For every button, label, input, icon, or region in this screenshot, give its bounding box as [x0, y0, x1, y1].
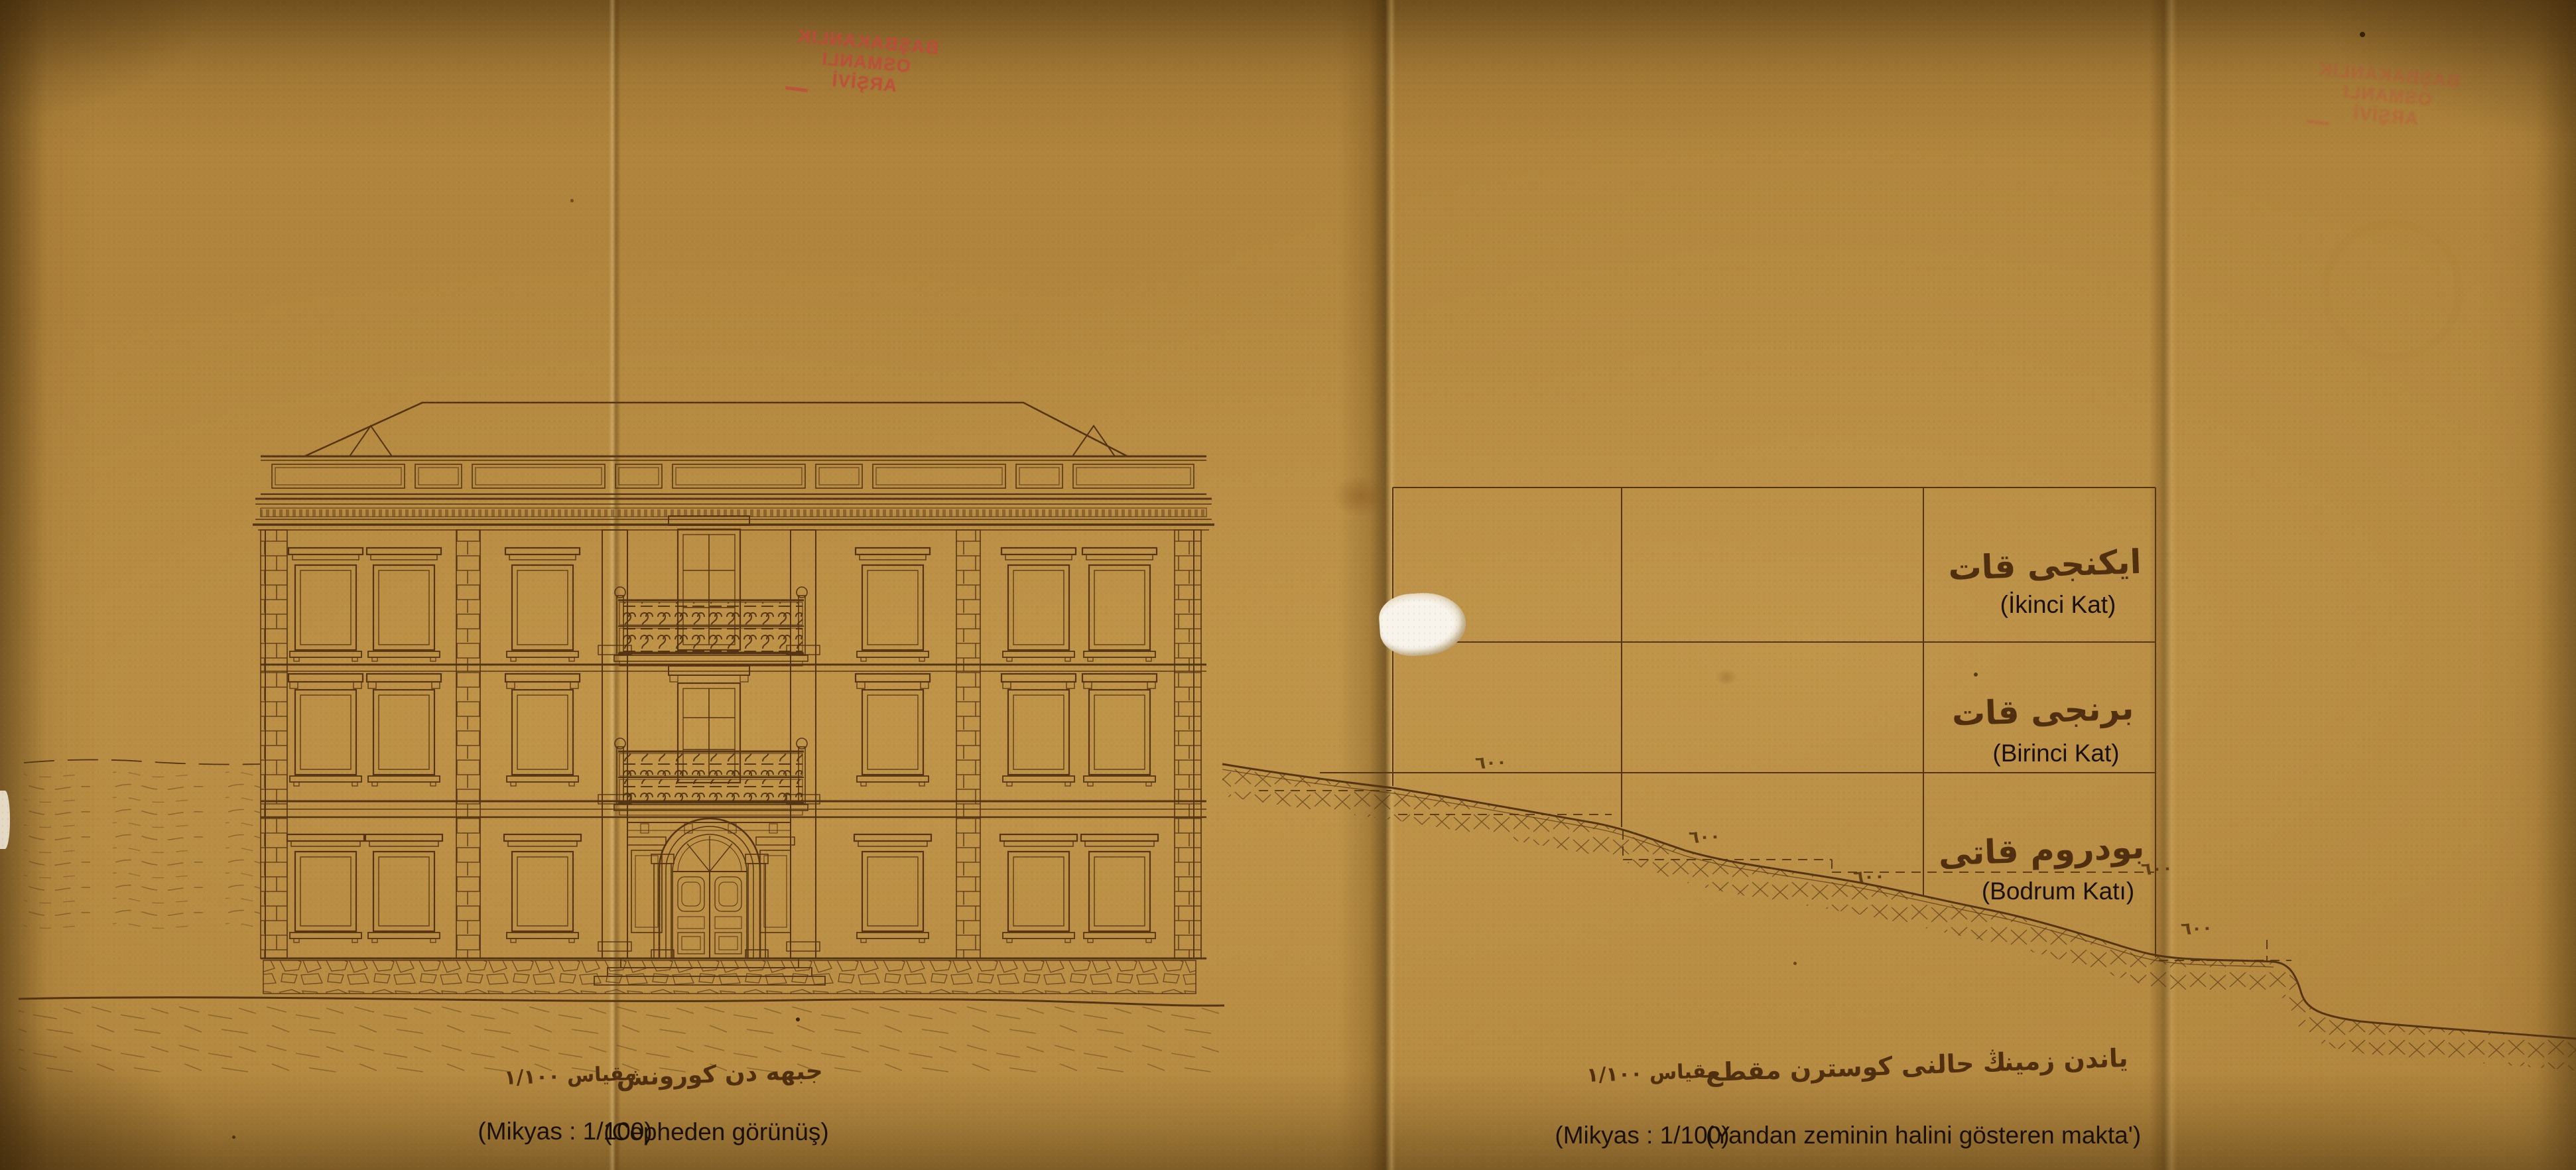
window — [1000, 834, 1077, 942]
archival-drawing-sheet: BAŞBAKANLIK OSMANLI ARŞİVİ BAŞBAKANLIK O… — [0, 0, 2576, 1170]
floor-label-ottoman-first: برنجى قات — [1951, 688, 2134, 734]
window — [504, 834, 581, 942]
window — [1081, 834, 1158, 942]
section-scale-latin: (Mikyas : 1/100) — [1555, 1122, 1729, 1149]
facade-title-latin: (Cepheden görünüş) — [604, 1118, 828, 1146]
archive-stamp: BAŞBAKANLIK OSMANLI ARŞİVİ — [792, 26, 939, 99]
speck — [1793, 962, 1797, 965]
speck — [796, 1017, 800, 1021]
floor-label-ottoman-basement: بودروم قاتى — [1938, 828, 2145, 874]
roof-outline — [304, 403, 1127, 456]
window — [287, 834, 364, 942]
parapet-balustrade — [261, 456, 1206, 494]
technical-drawing-layer — [0, 0, 2576, 1170]
ground-line — [19, 998, 1224, 1006]
speck — [570, 199, 574, 202]
window — [1001, 548, 1076, 661]
window — [367, 674, 441, 786]
section-scale-ottoman: مقياس ١/١٠٠ — [1586, 1059, 1720, 1087]
speck — [232, 1136, 235, 1139]
window — [1001, 674, 1076, 786]
floor-label-latin-second: (İkinci Kat) — [2000, 591, 2116, 619]
quoin-strip — [261, 530, 1201, 958]
dimension-mark: ٦٠٠ — [1688, 826, 1720, 848]
window — [365, 834, 442, 942]
window — [856, 548, 930, 661]
window — [1082, 674, 1157, 786]
dimension-mark: ٦٠٠ — [1852, 866, 1885, 887]
window — [854, 834, 931, 942]
dimension-mark: ٦٠٠ — [2180, 918, 2213, 939]
window — [1082, 548, 1157, 661]
archive-stamp-faint: BAŞBAKANLIK OSMANLI ARŞİVİ — [2313, 59, 2461, 133]
paper-edge-nick — [0, 791, 10, 849]
window — [856, 674, 930, 786]
stone-base — [263, 960, 1196, 994]
terrain-hatching — [1222, 764, 2576, 1071]
window — [505, 548, 580, 661]
floor-label-ottoman-second: ايكنجى قات — [1947, 543, 2142, 588]
ground-floor-windows — [287, 834, 1158, 942]
speck — [1974, 673, 1978, 677]
window — [289, 548, 363, 661]
facade-elevation — [19, 403, 1224, 1082]
floor-label-latin-basement: (Bodrum Katı) — [1982, 877, 2134, 905]
wall-face — [261, 530, 1206, 958]
dimension-mark: ٦٠٠ — [2140, 858, 2173, 879]
section-diagram — [1222, 487, 2576, 1071]
floor-label-latin-first: (Birinci Kat) — [1992, 740, 2119, 767]
section-title-latin: (Yandan zeminin halini gösteren makta') — [1706, 1122, 2141, 1149]
window — [367, 548, 441, 661]
balcony-second-floor — [614, 587, 808, 666]
dimension-mark: ٦٠٠ — [1474, 752, 1507, 773]
window — [289, 674, 363, 786]
left-hillside-sketch — [24, 759, 260, 934]
window — [505, 674, 580, 786]
speck — [2360, 32, 2365, 37]
